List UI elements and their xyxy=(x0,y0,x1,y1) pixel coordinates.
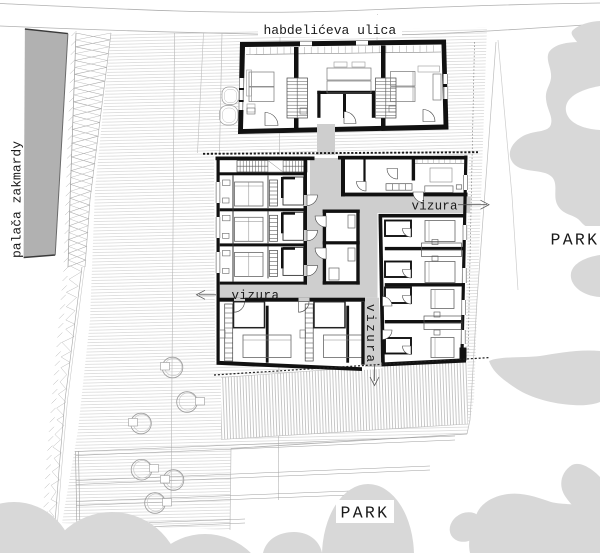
svg-text:vizura: vizura xyxy=(363,304,377,365)
svg-text:vizura: vizura xyxy=(232,289,280,303)
svg-text:PARK: PARK xyxy=(341,504,390,523)
svg-text:PARK: PARK xyxy=(551,231,600,250)
svg-text:palača zakmardy: palača zakmardy xyxy=(10,141,25,258)
svg-text:vizura: vizura xyxy=(412,199,459,213)
svg-text:habdelićeva ulica: habdelićeva ulica xyxy=(264,23,397,38)
